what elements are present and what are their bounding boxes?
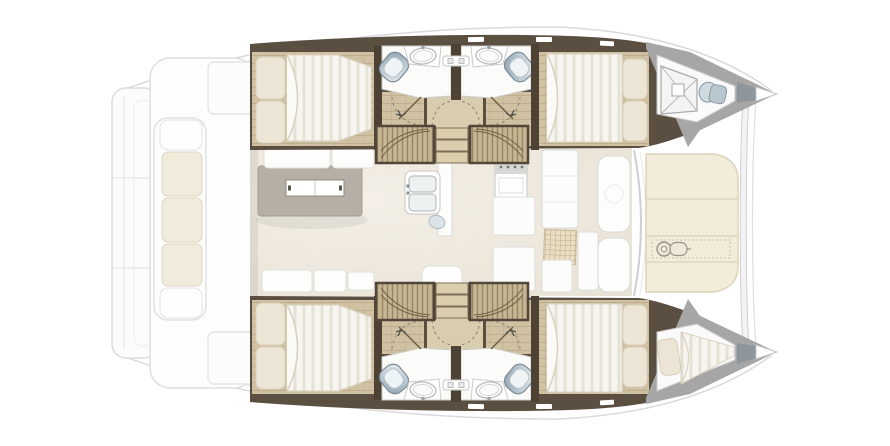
cockpit-sofa xyxy=(154,118,206,320)
pillow xyxy=(657,338,682,376)
foredeck-lounge xyxy=(646,154,738,292)
centerpiece-clasp xyxy=(339,186,342,191)
faucet-icon xyxy=(421,46,425,50)
step-tread xyxy=(436,128,468,139)
sofa-cushion xyxy=(162,244,202,286)
pillow xyxy=(256,57,285,99)
lounge-cushions xyxy=(646,154,738,292)
hull-window xyxy=(536,37,552,42)
tall-cabinet xyxy=(542,150,578,228)
hull-top xyxy=(250,35,777,163)
forward-seat-cushion xyxy=(598,238,630,292)
saloon xyxy=(250,147,646,296)
vanity-shelf xyxy=(443,56,469,66)
aft-cabin xyxy=(252,52,374,146)
cabinet-panel xyxy=(578,232,598,290)
bow-tip xyxy=(756,87,777,101)
faucet-icon xyxy=(487,46,491,50)
saloon-aft-shadow xyxy=(250,148,258,296)
bathroom-divider xyxy=(451,44,461,100)
forward-cabin xyxy=(539,52,649,146)
bench-cushion-aft xyxy=(264,147,330,168)
bench-cushion-fwd xyxy=(314,270,346,292)
side-table xyxy=(348,272,374,290)
step-tread xyxy=(436,152,468,163)
forward-crossbeam xyxy=(740,86,757,360)
windlass-icon xyxy=(657,242,691,256)
yacht-floorplan xyxy=(0,0,890,446)
step-tread xyxy=(436,140,468,151)
companionway-stairs xyxy=(376,126,528,163)
hull-window xyxy=(600,41,614,47)
bench-cushion-fwd xyxy=(262,270,312,292)
faucet-icon xyxy=(406,191,409,194)
cabinet-panel xyxy=(542,260,572,292)
sofa-cushion xyxy=(162,198,202,242)
hull-window xyxy=(468,37,484,42)
pillow xyxy=(623,101,647,141)
sink-bowl xyxy=(409,194,436,211)
floor-hatch-grate xyxy=(543,229,576,264)
faucet-icon xyxy=(406,184,409,187)
pillow xyxy=(623,59,647,99)
sink-bowl xyxy=(409,176,436,192)
sofa-cushion xyxy=(162,152,202,196)
bench-cushion-aft xyxy=(332,147,374,168)
galley-counter xyxy=(493,197,535,235)
pillow xyxy=(256,101,285,143)
forward-seat-cushion xyxy=(598,156,630,232)
floorplan-svg xyxy=(0,0,890,446)
bulkhead xyxy=(531,44,539,150)
windshield-line xyxy=(634,150,641,296)
centerpiece-clasp xyxy=(288,186,291,191)
